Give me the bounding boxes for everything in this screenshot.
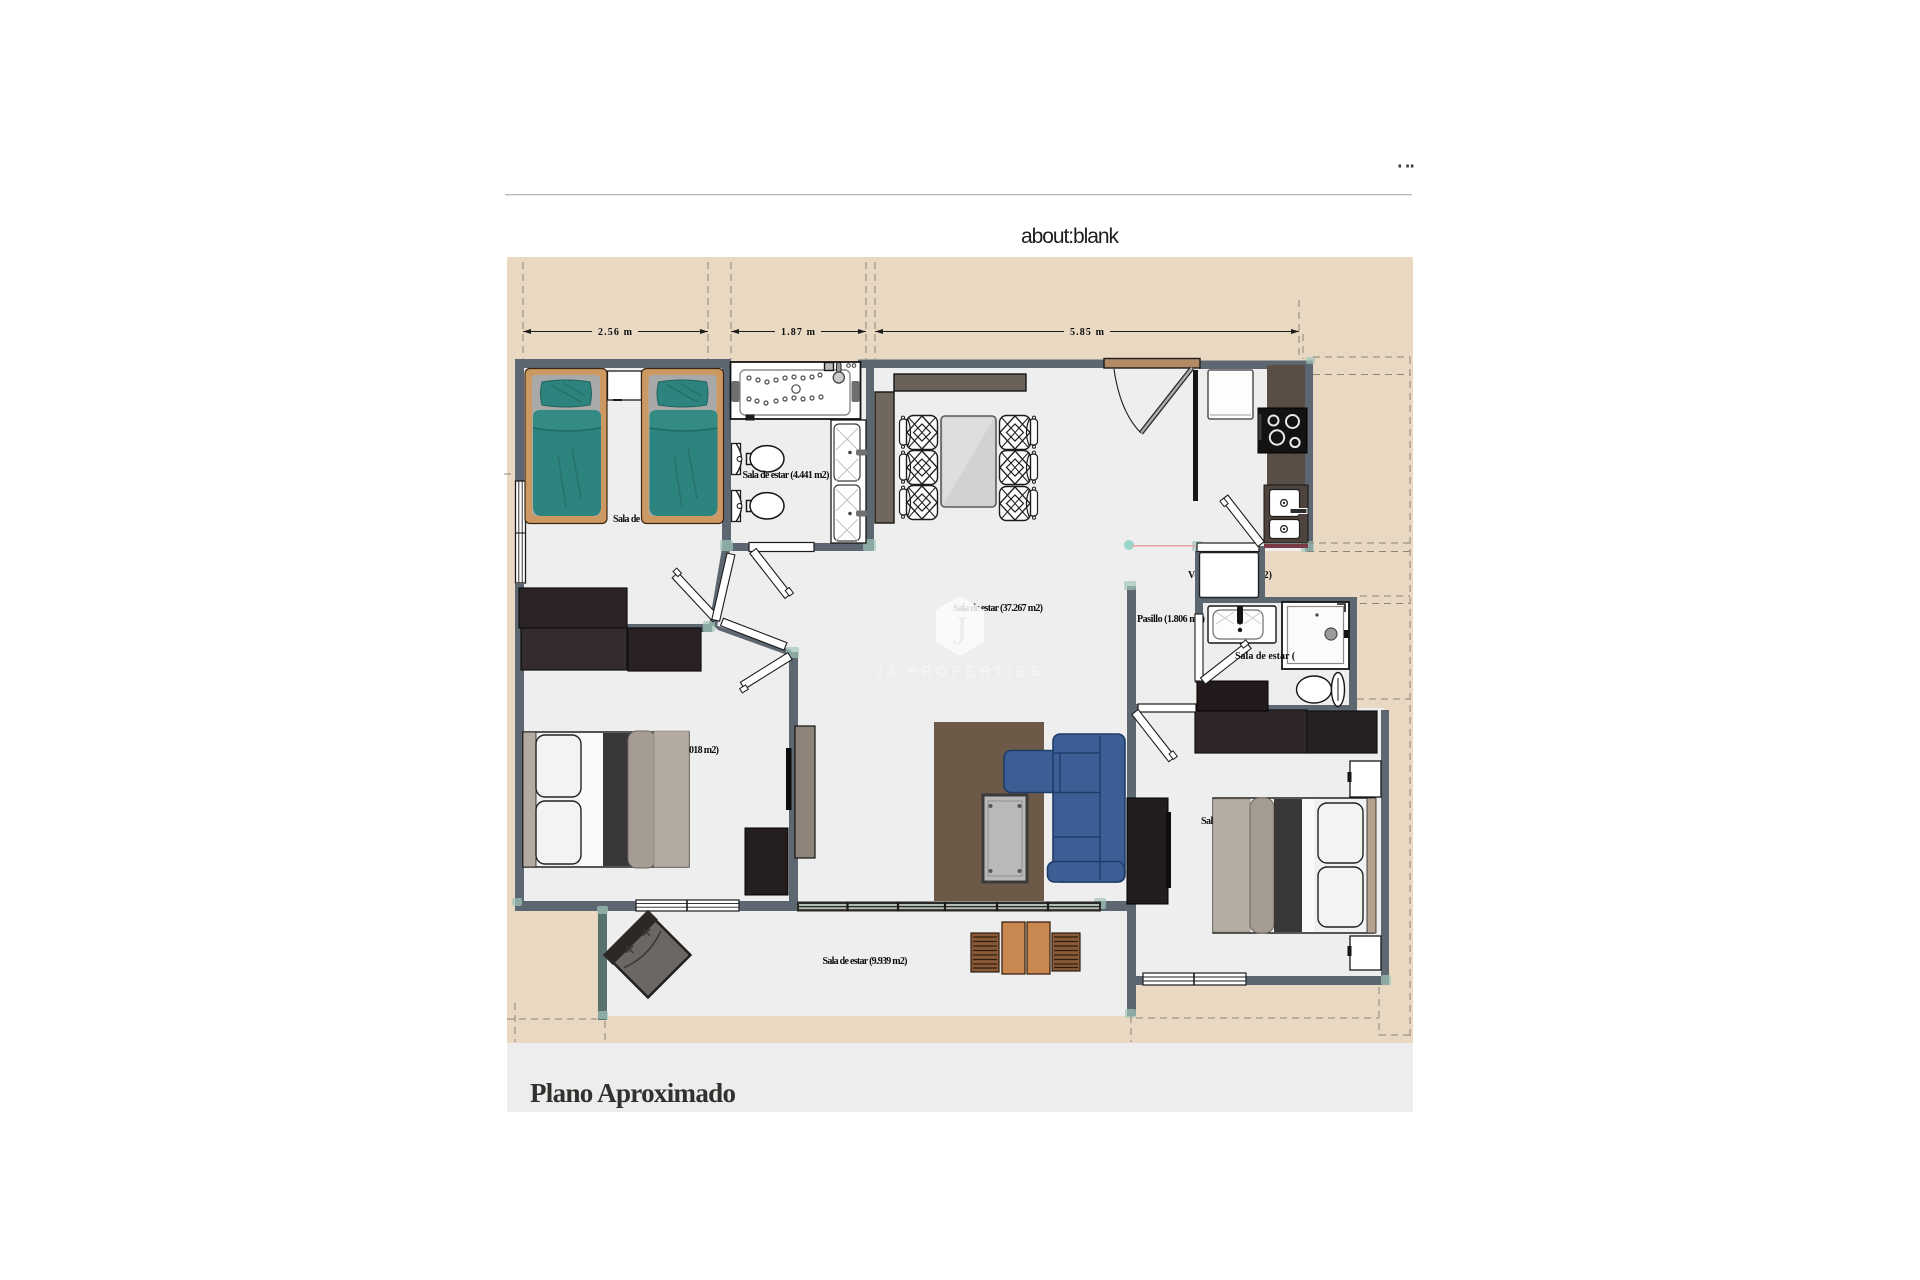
svg-text:JJ PROPERTIES: JJ PROPERTIES	[875, 664, 1044, 679]
svg-text:Sala de estar (: Sala de estar (	[1235, 651, 1296, 662]
svg-text:Plano Aproximado: Plano Aproximado	[530, 1078, 736, 1108]
svg-text:REAL ESTATE: REAL ESTATE	[921, 679, 995, 688]
svg-text:about:blank: about:blank	[1021, 225, 1120, 248]
svg-text:5.85 m: 5.85 m	[1070, 327, 1105, 338]
svg-text:Sala de estar (4.441 m2): Sala de estar (4.441 m2)	[743, 470, 830, 481]
svg-text:2.56 m: 2.56 m	[598, 327, 633, 338]
svg-text:Sala de estar (9.939 m2): Sala de estar (9.939 m2)	[823, 956, 908, 967]
svg-text:1.87 m: 1.87 m	[781, 327, 816, 338]
svg-text:J: J	[952, 608, 968, 653]
